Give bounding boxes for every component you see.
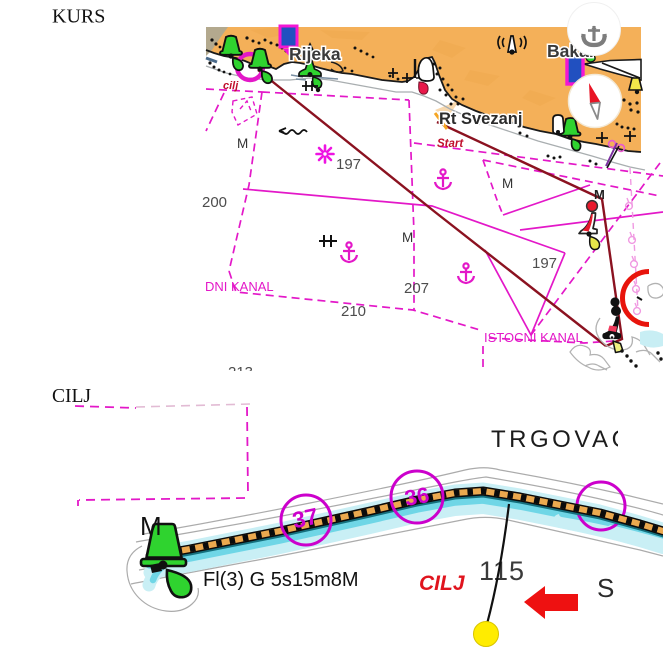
svg-text:Rt Svezanj: Rt Svezanj — [439, 110, 522, 128]
svg-text:197: 197 — [336, 156, 361, 173]
svg-text:210: 210 — [341, 303, 366, 320]
svg-text:TRGOVAC: TRGOVAC — [491, 426, 632, 453]
svg-text:DNI KANAL: DNI KANAL — [205, 279, 274, 294]
svg-text:S: S — [597, 573, 614, 603]
svg-text:Rijeka: Rijeka — [289, 44, 341, 64]
svg-text:37: 37 — [290, 503, 320, 534]
svg-text:KURS: KURS — [52, 6, 105, 28]
svg-text:M: M — [402, 230, 413, 245]
svg-text:cilj: cilj — [223, 80, 239, 92]
svg-text:115: 115 — [479, 556, 525, 586]
svg-text:ISTOCNI KANAL: ISTOCNI KANAL — [484, 330, 583, 345]
svg-text:207: 207 — [404, 280, 429, 297]
svg-text:M: M — [140, 511, 162, 541]
svg-text:CILJ: CILJ — [419, 572, 466, 595]
svg-text:Start: Start — [437, 138, 464, 150]
svg-text:M: M — [594, 187, 605, 202]
svg-text:200: 200 — [202, 194, 227, 211]
svg-text:36: 36 — [403, 482, 431, 511]
svg-text:Fl(3) G 5s15m8M: Fl(3) G 5s15m8M — [203, 569, 359, 591]
svg-text:M: M — [502, 176, 513, 191]
svg-text:197: 197 — [532, 255, 557, 272]
svg-text:M: M — [237, 136, 248, 151]
svg-text:CILJ: CILJ — [52, 386, 91, 407]
